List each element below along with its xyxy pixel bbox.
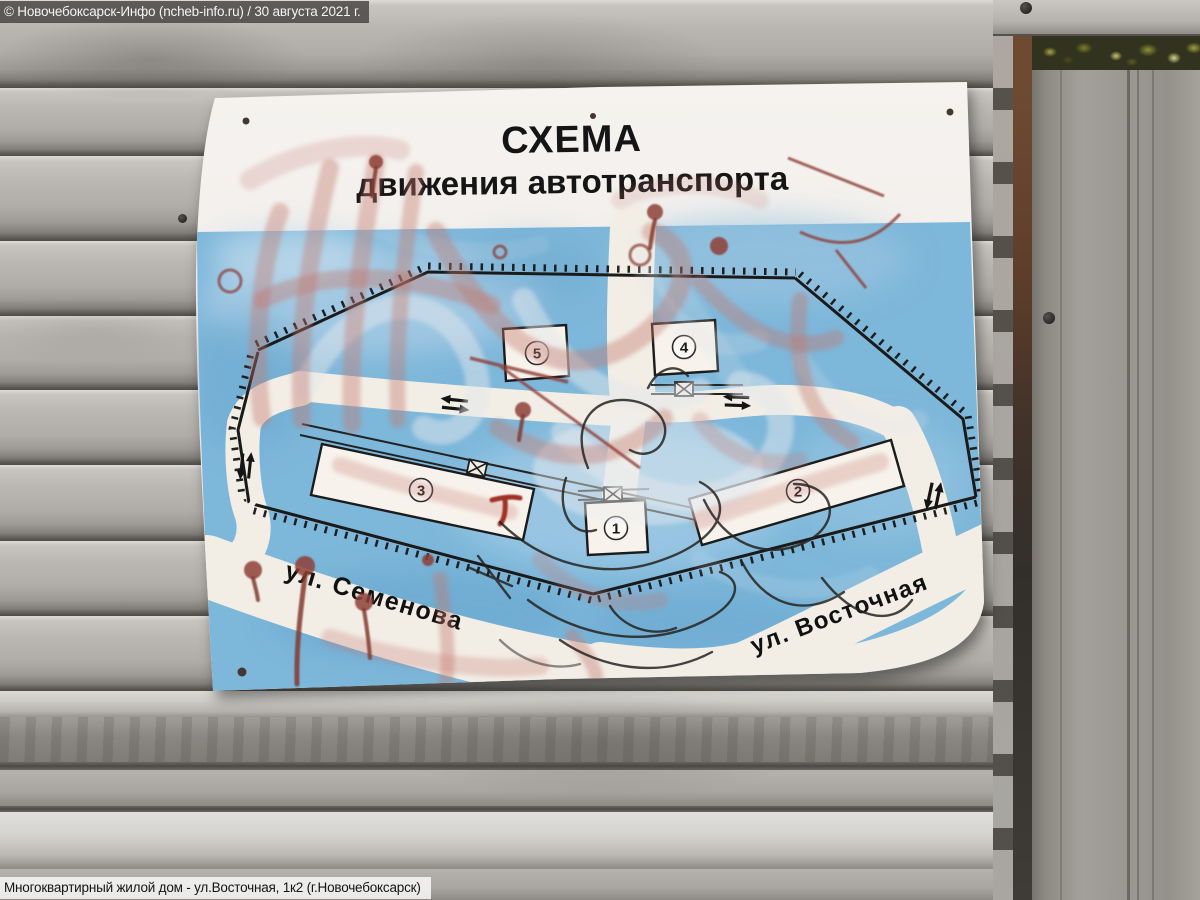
photo-of-traffic-scheme-poster: 1 2 3 4 5 [0, 0, 1200, 900]
caption-address: Многоквартирный жилой дом - ул.Восточная… [0, 877, 431, 899]
traffic-scheme-poster: 1 2 3 4 5 [0, 0, 1200, 900]
title-line-1: СХЕМА [501, 118, 642, 162]
watermark-source: © Новочебоксарск-Инфо (ncheb-info.ru) / … [0, 1, 369, 23]
